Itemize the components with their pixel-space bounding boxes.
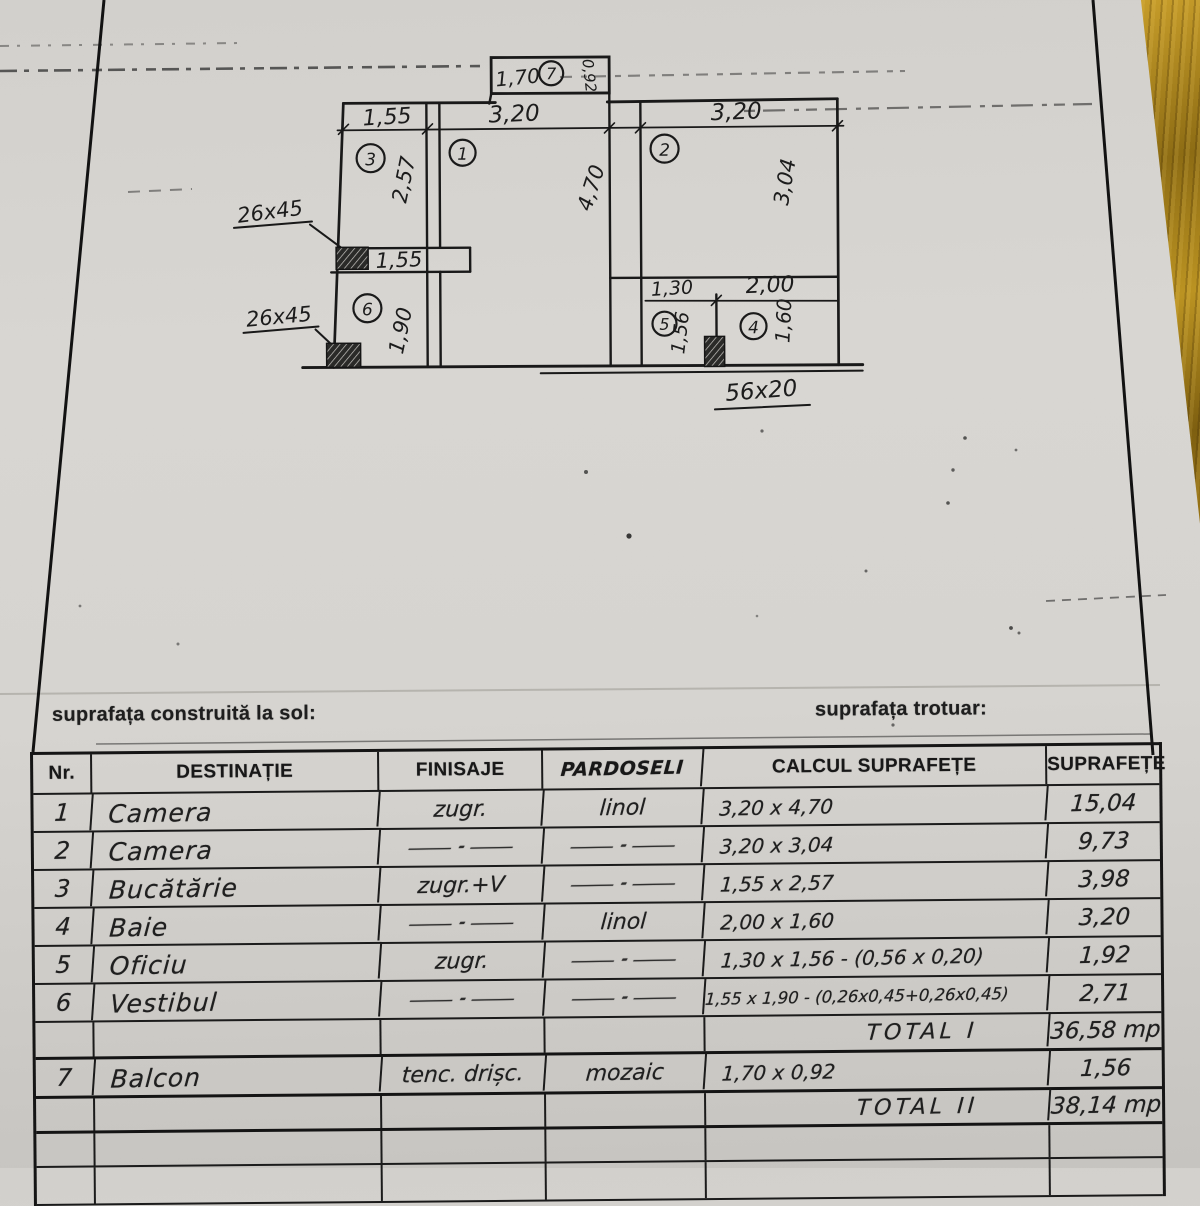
cell-empty [383,1164,547,1201]
cell-suprafata: 3,20 [1047,899,1162,937]
cell-total1-label: TOTAL I [704,1012,1051,1053]
cell-calcul: 2,00 x 1,60 [703,898,1050,941]
cell-suprafata: 15,04 [1046,785,1161,823]
header-finisaje: FINISAJE [379,751,543,790]
header-pardoseli-handwritten: PARDOSELI [542,748,705,789]
cell-nr: 2 [33,832,95,869]
cell-calcul: 3,20 x 4,70 [702,784,1049,827]
cell-empty [706,1125,1050,1160]
cell-nr: 5 [34,946,96,983]
caption-built-area: suprafața construită la sol: [52,702,316,727]
cell-total2-value: 38,14 mp [1049,1089,1163,1123]
dim-top-155: 1,55 [362,104,412,132]
header-destinatie: DESTINAȚIE [92,752,379,793]
cell-empty [37,1167,96,1204]
cell-total1-value: 36,58 mp [1048,1013,1162,1049]
cell-destinatie: Balcon [94,1055,384,1097]
cell-empty [36,1098,95,1131]
cell-finisaje: tenc. drișc. [381,1055,548,1094]
cell-empty [546,1128,706,1161]
dim-room6-height: 1,90 [384,305,417,356]
surfaces-table: Nr. DESTINAȚIE FINISAJE PARDOSELI CALCUL… [30,742,1166,1206]
caption-sidewalk-area: suprafața trotuar: [815,697,987,721]
room-number-5: 5 [659,315,669,334]
ditto-mark: —·— [406,836,516,859]
cell-pardoseli: —·— [544,940,707,979]
balcony-width-label: 1,70 [494,63,541,91]
cell-empty [96,1165,383,1204]
dim-room2-height: 3,04 [769,157,801,207]
cell-nr: 3 [33,870,95,907]
cell-finisaje: —·— [379,828,546,867]
cell-nr: 7 [35,1059,97,1096]
cell-empty [95,1131,382,1166]
room-number-4: 4 [748,318,759,338]
cell-calcul: 1,55 x 1,90 - (0,26x0,45+0,26x0,45) [704,974,1051,1017]
cell-calcul: 1,55 x 2,57 [703,860,1050,903]
cell-destinatie: Vestibul [93,980,383,1022]
cell-destinatie: Oficiu [93,942,383,984]
cell-pardoseli: linol [543,902,706,941]
pier-26x45-bottom [327,343,361,367]
cell-destinatie: Baie [92,904,382,946]
cell-empty [381,1019,545,1054]
cell-suprafata: 3,98 [1047,861,1162,899]
pier-label-right: 56x20 [724,376,798,407]
photocopy-noise-lines [0,43,1166,744]
cell-calcul: 1,30 x 1,56 - (0,56 x 0,20) [703,936,1050,979]
cell-suprafata: 1,92 [1048,937,1163,975]
ditto-mark: —·— [568,872,678,895]
dim-room3-height: 2,57 [387,154,420,205]
cell-nr: 1 [32,794,94,831]
cell-destinatie: Camera [92,828,382,870]
cell-pardoseli: linol [542,788,705,827]
header-nr: Nr. [33,754,92,793]
cell-empty [546,1093,706,1126]
dim-shelf: 1,55 [375,247,423,273]
cell-empty [1050,1124,1162,1157]
cell-pardoseli: —·— [543,864,706,903]
room-number-7: 7 [546,64,557,83]
cell-finisaje: —·— [380,980,547,1019]
cell-calcul: 1,70 x 0,92 [704,1049,1051,1092]
cell-finisaje: —·— [379,904,546,943]
room-number-6: 6 [362,300,373,320]
balcony-depth-label: 0,92 [578,58,600,93]
dim-room4-height: 1,60 [770,298,796,344]
cell-destinatie: Camera [91,790,381,832]
ditto-mark: —·— [407,988,517,1011]
ditto-mark: —·— [406,912,516,935]
cell-suprafata: 2,71 [1048,975,1163,1013]
cell-suprafata: 9,73 [1047,823,1162,861]
cell-empty [36,1133,95,1166]
cell-destinatie: Bucătărie [92,866,382,908]
header-calcul: CALCUL SUPRAFEȚE [703,746,1047,787]
room-number-2: 2 [659,141,670,161]
ditto-mark: —·— [568,834,678,857]
cell-suprafata: 1,56 [1049,1050,1164,1088]
dim-top-320-right: 3,20 [710,98,762,126]
cell-empty [545,1017,705,1052]
dim-room1-height: 4,70 [573,162,610,214]
ditto-mark: —·— [569,986,679,1009]
cell-finisaje: zugr. [380,942,547,981]
cell-calcul: 3,20 x 3,04 [702,822,1049,865]
dim-room5-height: 1,56 [667,311,694,356]
cell-empty [707,1159,1051,1198]
dim-room4-width: 2,00 [745,272,795,299]
cell-pardoseli: —·— [544,978,707,1017]
cell-total2-label: TOTAL II [705,1088,1051,1127]
cell-empty [35,1022,94,1057]
pier-56x20 [705,336,725,366]
cell-pardoseli: —·— [543,826,706,865]
cell-empty [95,1096,382,1131]
dim-room5-width: 1,30 [650,276,694,300]
room-number-3: 3 [365,150,376,170]
page-frame-lines [33,0,1153,755]
room-number-1: 1 [457,145,468,165]
cell-finisaje: zugr. [378,790,545,829]
scanned-document-photo: { "captions": { "left": "suprafața const… [0,0,1200,1168]
dim-top-320-left: 3,20 [488,100,540,128]
header-suprafete: SUPRAFEȚE [1047,745,1166,784]
cell-empty [382,1095,546,1128]
speckles [79,429,1021,726]
cell-empty [382,1130,546,1163]
cell-empty [94,1020,381,1057]
pier-26x45-top [336,247,368,269]
cell-empty [1051,1158,1163,1195]
cell-pardoseli: mozaic [545,1053,708,1092]
cell-nr: 4 [33,908,95,945]
cell-finisaje: zugr.+V [379,866,546,905]
ditto-mark: —·— [569,948,679,971]
cell-nr: 6 [34,984,96,1021]
